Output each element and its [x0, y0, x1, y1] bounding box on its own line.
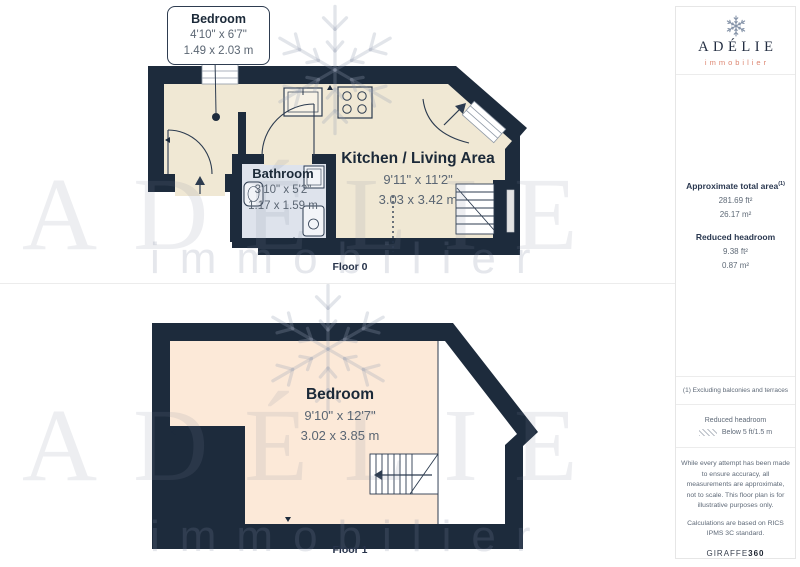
window-top [202, 64, 238, 84]
floor0-caption: Floor 0 [300, 261, 400, 273]
callout-anchor-dot [212, 113, 220, 121]
brand-name: ADÉLIE [694, 39, 778, 56]
brand-logo-section: ADÉLIE immobilier [676, 7, 795, 75]
brand-tagline: immobilier [702, 58, 769, 67]
total-area-footnote-marker: (1) [778, 181, 785, 187]
legend-item-label: Below 5 ft/1.5 m [722, 429, 772, 436]
bedroom1-room-name: Bedroom [240, 386, 440, 404]
legend-title: Reduced headroom [705, 417, 767, 424]
brand-snowflake-icon [725, 15, 747, 37]
hatch-swatch [699, 429, 717, 436]
reduced-headroom-heading: Reduced headroom [696, 232, 775, 242]
bathroom-metric-dim: 1.17 x 1.59 m [205, 199, 361, 213]
kitchen-sink [284, 88, 322, 116]
bedroom1-metric-dim: 3.02 x 3.85 m [240, 427, 440, 444]
reduced-headroom-m: 0.87 m² [722, 261, 749, 270]
total-area-heading: Approximate total area(1) [686, 181, 785, 191]
callout-imperial-dim: 4'10" x 6'7" [170, 28, 267, 42]
total-area-m: 26.17 m² [720, 210, 752, 219]
disclaimer-text-2: Calculations are based on RICS IPMS 3C s… [681, 519, 790, 540]
footnote-text: (1) Excluding balconies and terraces [683, 387, 788, 394]
bedroom-callout: Bedroom 4'10" x 6'7" 1.49 x 2.03 m [167, 6, 270, 65]
floor0-plan-drawing [0, 0, 675, 283]
bedroom-floor1-label: Bedroom 9'10" x 12'7" 3.02 x 3.85 m [240, 386, 440, 444]
disclaimer-text-1: While every attempt has been made to ens… [681, 459, 790, 512]
bathroom-label: Bathroom 3'10" x 5'2" 1.17 x 1.59 m [205, 166, 361, 213]
total-area-ft: 281.69 ft² [719, 196, 753, 205]
reduced-headroom-ft: 9.38 ft² [723, 247, 748, 256]
footnote-section: (1) Excluding balconies and terraces [676, 377, 795, 405]
floor0-panel: ADÉLIE immobilier Bedroom 4'10" x 6'7" 1… [0, 0, 675, 284]
floor1-caption: Floor 1 [300, 544, 400, 556]
floor1-panel: ADÉLIE immobilier Bedroom 9'10" x 12'7" … [0, 284, 675, 567]
bathroom-room-name: Bathroom [205, 166, 361, 181]
area-summary-section: Approximate total area(1) 281.69 ft² 26.… [676, 75, 795, 377]
info-sidebar: ADÉLIE immobilier Approximate total area… [675, 6, 796, 559]
callout-metric-dim: 1.49 x 2.03 m [170, 44, 267, 58]
disclaimer-section: While every attempt has been made to ens… [676, 448, 795, 558]
callout-room-name: Bedroom [170, 12, 267, 26]
legend-section: Reduced headroom Below 5 ft/1.5 m [676, 405, 795, 448]
giraffe360-credit: GIRAFFE360 [706, 549, 764, 558]
bathroom-imperial-dim: 3'10" x 5'2" [205, 183, 361, 197]
bedroom1-imperial-dim: 9'10" x 12'7" [240, 407, 440, 424]
floorplan-document: ADÉLIE immobilier Bedroom 4'10" x 6'7" 1… [0, 0, 800, 566]
